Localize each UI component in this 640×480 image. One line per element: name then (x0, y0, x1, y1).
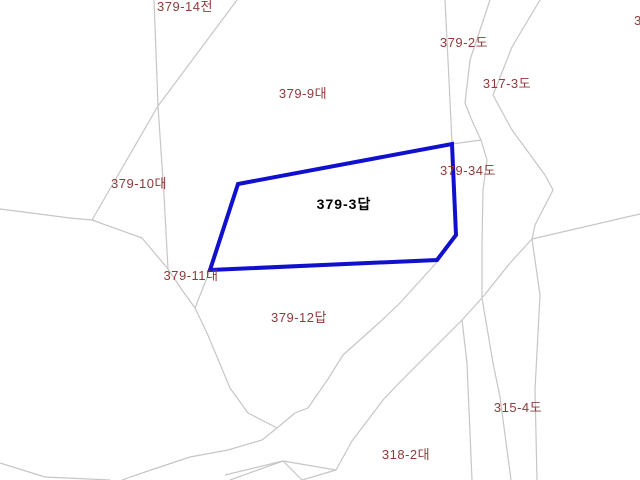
boundary-line-bottom-fan-mid (230, 461, 283, 480)
boundary-line-west-vertical (154, 0, 168, 269)
parcel-label-379-9: 379-9대 (279, 87, 327, 101)
parcel-label-379-34: 379-34도 (440, 164, 496, 178)
cadastral-map-svg (0, 0, 640, 480)
parcel-label-379-11: 379-11대 (164, 269, 219, 283)
parcel-label-318-2: 318-2대 (382, 448, 430, 462)
boundary-line-12dap-west (195, 308, 277, 428)
parcel-label-317-3: 317-3도 (483, 77, 531, 91)
boundary-line-379-2-west (445, 0, 452, 144)
parcel-label-379-12: 379-12답 (271, 311, 327, 325)
boundary-line-east-horizontal (532, 214, 640, 239)
boundary-line-bottom-left (0, 463, 110, 480)
boundary-line-315-4-east (532, 239, 540, 480)
parcel-label-379-14: 379-14전 (157, 0, 213, 14)
boundary-line-corner-to-road (452, 140, 481, 144)
parcel-label-379-2: 379-2도 (440, 36, 488, 50)
map-canvas[interactable]: 379-14전 379-2도 317-3도 379-9대 379-10대 379… (0, 0, 640, 480)
boundary-line-west-join (92, 220, 168, 269)
parcel-label-315-4: 315-4도 (494, 401, 542, 415)
parcel-label-379-10: 379-10대 (111, 177, 167, 191)
boundary-line-315-4-west (462, 320, 472, 480)
parcel-label-clipped-edge: 3 (634, 14, 640, 28)
boundary-line-west-horizontal (0, 209, 92, 220)
parcel-label-379-3-highlighted: 379-3답 (317, 197, 372, 211)
